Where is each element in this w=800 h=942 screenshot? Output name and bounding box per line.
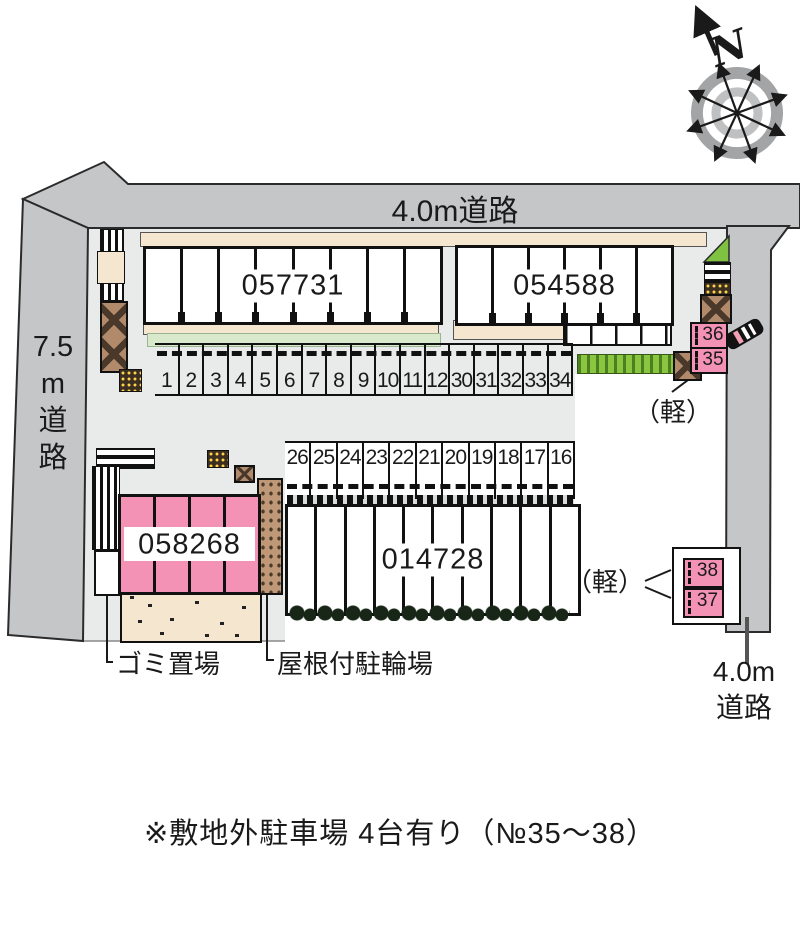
footnote: ※敷地外駐車場 4台有り（№35～38） <box>0 810 800 852</box>
stairs-right <box>704 262 731 284</box>
offsite-stall-label: 35 <box>692 349 726 371</box>
offsite-stall-38: 38 <box>683 558 724 588</box>
stall-dash-line <box>157 351 571 356</box>
parking-stall-label: 31 <box>473 369 500 393</box>
parking-stall-label: 7 <box>301 369 328 393</box>
building-unit <box>638 248 671 323</box>
parking-stall-label: 16 <box>547 446 575 470</box>
kei-label-upper: （軽） <box>634 392 712 429</box>
garbage-speckles <box>130 596 134 599</box>
building-number: 058268 <box>133 528 246 561</box>
parking-stall-label: 4 <box>227 369 254 393</box>
parking-stall-label: 18 <box>494 446 522 470</box>
offsite-stall-label: 36 <box>692 324 726 346</box>
building-054588: 054588 <box>455 245 674 326</box>
offsite-parking-38-37: 3837 <box>672 547 741 625</box>
utility-pad <box>97 251 125 284</box>
parking-stall-label: 9 <box>350 369 377 393</box>
parking-stall-25: 25 <box>311 443 337 499</box>
parking-row-front: 1234567891011123031323334 <box>155 343 573 396</box>
stairs-left <box>100 301 128 373</box>
offsite-stall-label: 37 <box>685 590 722 612</box>
parking-stall-label: 2 <box>178 369 205 393</box>
parking-stall-label: 33 <box>522 369 549 393</box>
shrub-row <box>288 597 570 621</box>
parking-stall-label: 19 <box>468 446 496 470</box>
parking-stall-label: 17 <box>520 446 548 470</box>
parking-stall-label: 12 <box>424 369 451 393</box>
parking-stall-label: 3 <box>202 369 229 393</box>
utility-box-right <box>700 294 732 324</box>
building-unit <box>146 249 183 322</box>
parking-stall-label: 22 <box>388 446 416 470</box>
parking-stall-label: 24 <box>336 446 364 470</box>
parking-stall-19: 19 <box>470 443 496 499</box>
offsite-stall-37: 37 <box>683 588 724 618</box>
kei-label-lower: （軽） <box>566 562 644 599</box>
parking-stall-label: 11 <box>399 369 426 393</box>
parking-stall-label: 30 <box>448 369 475 393</box>
stall-dash-line <box>287 484 573 489</box>
parking-stall-label: 23 <box>362 446 390 470</box>
leader-kei-lower <box>645 570 671 598</box>
parking-stall-18: 18 <box>496 443 522 499</box>
parking-stall-20: 20 <box>443 443 469 499</box>
road-label-line: 道 <box>22 403 84 440</box>
parking-stall-21: 21 <box>417 443 443 499</box>
hedge-strip <box>577 354 677 374</box>
building-unit <box>406 249 440 322</box>
building-058268: 058268 <box>118 494 261 595</box>
meter-box-mid <box>207 450 229 468</box>
parking-stall-label: 32 <box>497 369 524 393</box>
parking-stall-26: 26 <box>285 443 311 499</box>
building-number: 057731 <box>237 269 350 302</box>
road-label-right: 4.0m 道路 <box>698 654 790 726</box>
road-label-line: 4.0m <box>698 654 790 690</box>
site-plan: N 1 <box>0 0 800 942</box>
parking-stall-16: 16 <box>549 443 575 499</box>
building-number: 014728 <box>377 544 490 577</box>
road-label-line: m <box>22 366 84 403</box>
parking-stall-label: 5 <box>251 369 278 393</box>
garbage-label: ゴミ置場 <box>116 644 220 681</box>
parking-stall-24: 24 <box>338 443 364 499</box>
offsite-stall-label: 38 <box>685 560 722 582</box>
bicycle-label: 屋根付駐輪場 <box>277 644 433 681</box>
building-unit <box>458 248 494 323</box>
compass-rose: N <box>672 16 800 178</box>
road-label-left: 7.5 m 道 路 <box>22 329 84 477</box>
road-label-line: 道路 <box>698 690 790 726</box>
utility-box-mid <box>234 465 255 483</box>
road-label-line: 路 <box>22 440 84 477</box>
offsite-stall-36: 36 <box>690 322 728 349</box>
road-label-top: 4.0m道路 <box>330 186 580 230</box>
parking-stall-label: 21 <box>415 446 443 470</box>
building-057731: 057731 <box>143 246 443 325</box>
parking-stall-label: 34 <box>547 369 574 393</box>
offsite-stall-35: 35 <box>690 347 728 374</box>
parking-stall-label: 6 <box>276 369 303 393</box>
building-unit <box>369 249 406 322</box>
stairs-lower-left <box>92 466 120 550</box>
parking-stall-label: 26 <box>283 446 311 470</box>
garbage-area <box>120 588 262 643</box>
parking-stall-label: 10 <box>374 369 401 393</box>
parking-stall-label: 1 <box>153 369 180 393</box>
road-label-line: 7.5 <box>22 329 84 366</box>
parking-stall-label: 8 <box>325 369 352 393</box>
parking-stall-label: 25 <box>309 446 337 470</box>
parking-stall-17: 17 <box>522 443 548 499</box>
offsite-parking-36-35: 3635 <box>690 322 728 374</box>
building-number: 054588 <box>508 269 621 302</box>
parking-stall-23: 23 <box>364 443 390 499</box>
meter-box-left <box>119 369 142 392</box>
building-unit <box>183 249 220 322</box>
parking-row-middle: 2625242322212019181716 <box>285 441 575 499</box>
parking-stall-label: 20 <box>441 446 469 470</box>
parking-stall-22: 22 <box>390 443 416 499</box>
